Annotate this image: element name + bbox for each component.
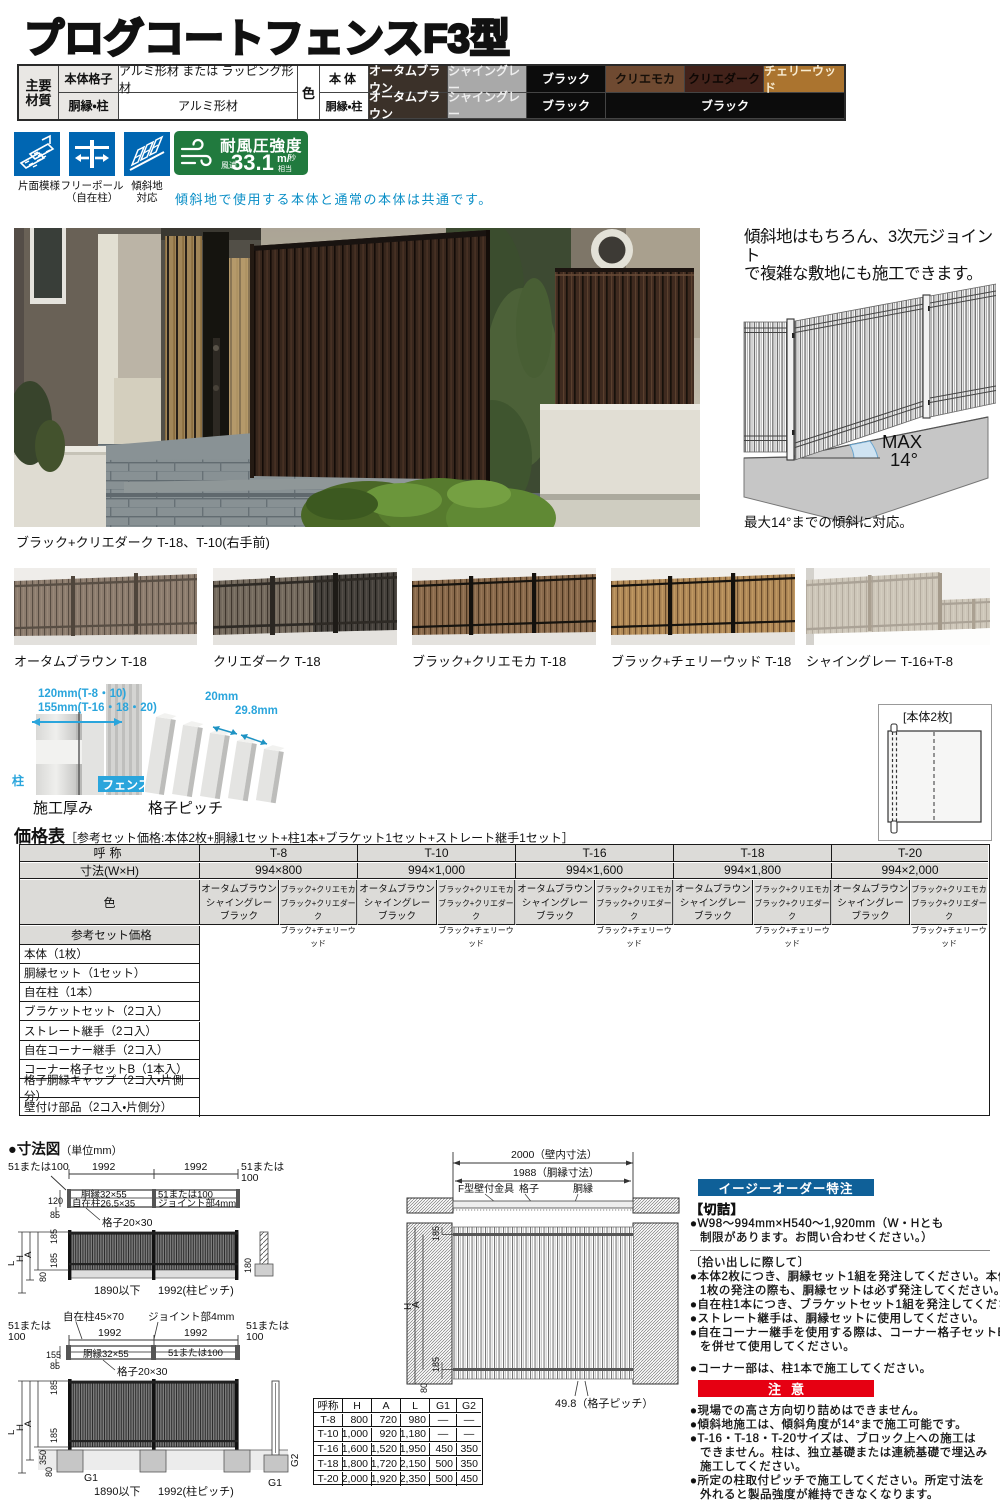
svg-text:2000（壁内寸法）: 2000（壁内寸法） — [511, 1148, 597, 1161]
svg-text:1890以下: 1890以下 — [94, 1285, 140, 1297]
svg-text:ジョイント部4mm: ジョイント部4mm — [158, 1199, 236, 1210]
svg-text:1890以下: 1890以下 — [94, 1486, 140, 1498]
svg-text:格子20×30: 格子20×30 — [117, 1365, 168, 1378]
svg-text:G1: G1 — [268, 1477, 282, 1489]
svg-text:[本体2枚]: [本体2枚] — [903, 709, 952, 724]
svg-text:F型壁付金具: F型壁付金具 — [458, 1182, 514, 1195]
svg-text:85: 85 — [50, 1210, 60, 1220]
svg-text:A: A — [411, 1301, 422, 1308]
svg-text:1992: 1992 — [92, 1161, 116, 1173]
svg-text:格子: 格子 — [519, 1182, 539, 1195]
svg-text:m/: m/ — [277, 153, 290, 165]
svg-text:秒: 秒 — [289, 153, 296, 162]
svg-text:185: 185 — [49, 1380, 59, 1395]
svg-text:185: 185 — [49, 1229, 59, 1244]
svg-text:80: 80 — [38, 1272, 48, 1282]
svg-text:185: 185 — [431, 1226, 441, 1241]
svg-text:G1: G1 — [84, 1472, 98, 1484]
svg-text:85: 85 — [50, 1361, 60, 1371]
svg-text:1992(柱ピッチ): 1992(柱ピッチ) — [158, 1283, 234, 1297]
svg-text:自在柱26.5×35: 自在柱26.5×35 — [72, 1198, 135, 1210]
svg-text:80: 80 — [44, 1467, 54, 1477]
svg-text:185: 185 — [49, 1428, 59, 1443]
svg-text:185: 185 — [49, 1253, 59, 1268]
svg-text:100: 100 — [246, 1331, 264, 1343]
svg-text:20mm: 20mm — [205, 691, 238, 703]
svg-text:180: 180 — [243, 1258, 253, 1273]
svg-text:185: 185 — [431, 1357, 441, 1372]
svg-text:155: 155 — [46, 1350, 61, 1360]
svg-text:柱: 柱 — [12, 773, 24, 788]
svg-text:80: 80 — [419, 1383, 429, 1393]
svg-text:1992: 1992 — [98, 1327, 122, 1339]
svg-text:33.1: 33.1 — [231, 150, 274, 175]
svg-text:胴縁32×55: 胴縁32×55 — [83, 1348, 129, 1360]
svg-text:A: A — [23, 1251, 34, 1258]
svg-text:1988（胴縁寸法）: 1988（胴縁寸法） — [513, 1166, 599, 1179]
svg-text:120: 120 — [48, 1196, 63, 1206]
svg-text:1992: 1992 — [184, 1327, 208, 1339]
svg-text:胴縁: 胴縁 — [573, 1182, 593, 1195]
svg-text:A: A — [23, 1420, 34, 1427]
svg-text:51または100: 51または100 — [8, 1161, 69, 1173]
svg-text:49.8（格子ピッチ）: 49.8（格子ピッチ） — [555, 1396, 653, 1410]
svg-text:14°: 14° — [890, 449, 918, 470]
svg-text:1992(柱ピッチ): 1992(柱ピッチ) — [158, 1484, 234, 1498]
svg-text:ジョイント部4mm: ジョイント部4mm — [148, 1311, 235, 1323]
svg-text:155mm(T-16・18・20): 155mm(T-16・18・20) — [38, 702, 157, 714]
svg-text:100: 100 — [241, 1172, 259, 1184]
svg-text:350: 350 — [38, 1450, 48, 1465]
svg-text:1992: 1992 — [184, 1161, 208, 1173]
svg-text:29.8mm: 29.8mm — [235, 705, 278, 717]
svg-text:格子20×30: 格子20×30 — [102, 1216, 153, 1229]
svg-text:相当: 相当 — [278, 164, 292, 173]
svg-text:100: 100 — [8, 1331, 26, 1343]
svg-text:51または100: 51または100 — [168, 1348, 223, 1359]
svg-text:自在柱45×70: 自在柱45×70 — [63, 1310, 124, 1323]
svg-text:120mm(T-8・10): 120mm(T-8・10) — [38, 688, 126, 700]
svg-text:フェンス: フェンス — [102, 778, 150, 792]
svg-text:G2: G2 — [290, 1453, 301, 1467]
